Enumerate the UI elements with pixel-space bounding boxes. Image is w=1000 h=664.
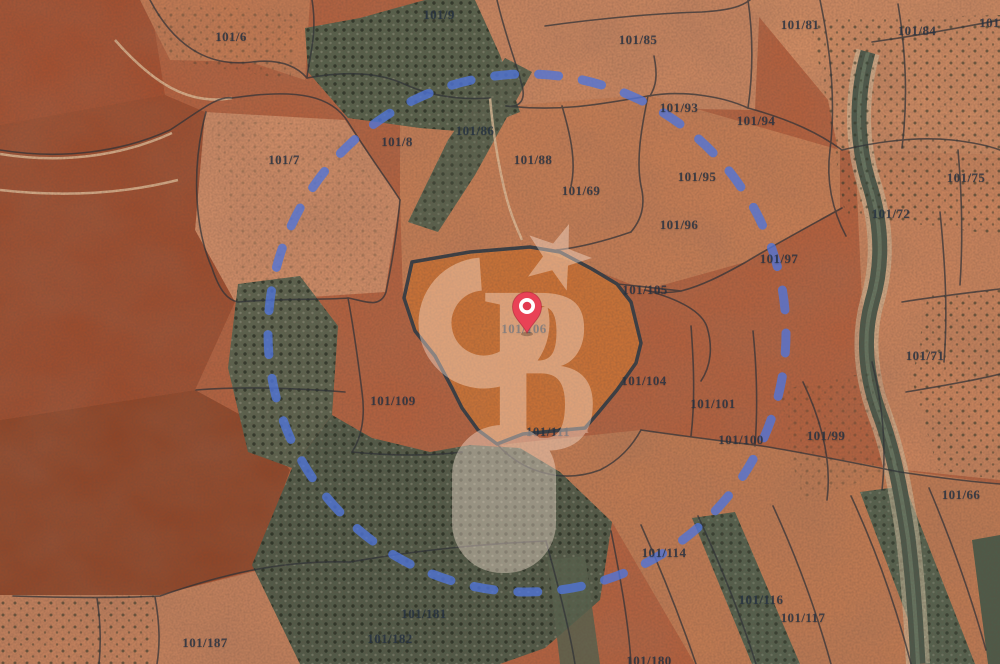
- map-root[interactable]: 101/6101/9101/85101/81101/84101/8101/710…: [0, 0, 1000, 664]
- satellite-terrain: [0, 0, 1000, 664]
